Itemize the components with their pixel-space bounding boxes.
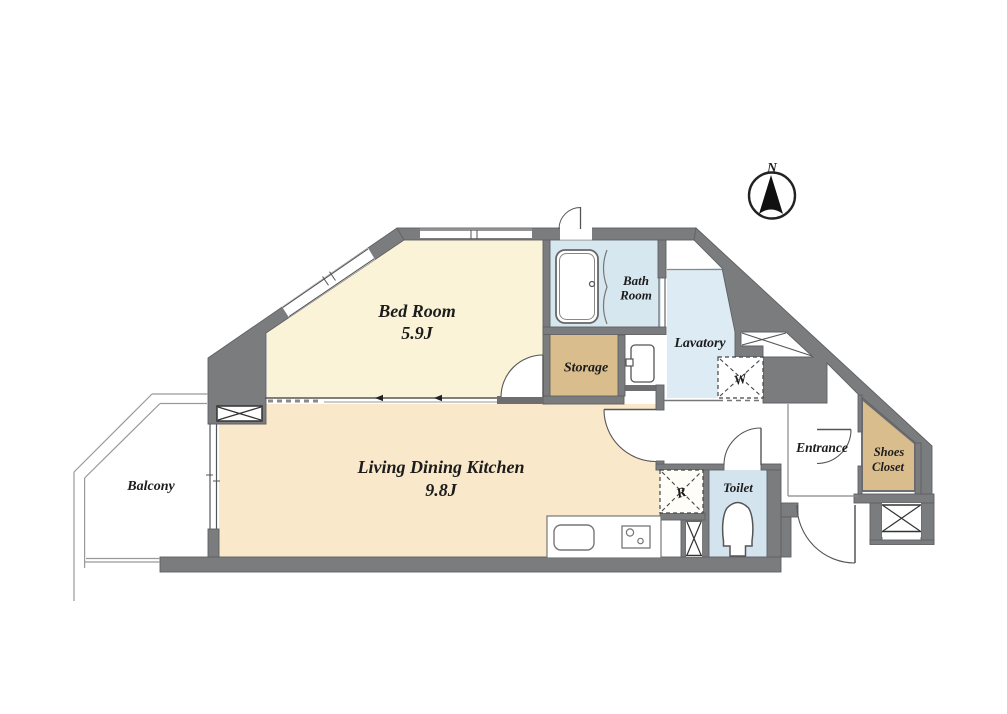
svg-text:5.9J: 5.9J <box>401 323 434 343</box>
svg-text:Bath: Bath <box>622 273 649 288</box>
svg-text:N: N <box>766 160 778 175</box>
svg-text:Toilet: Toilet <box>723 480 753 495</box>
svg-text:Shoes: Shoes <box>874 445 905 459</box>
svg-text:Bed Room: Bed Room <box>377 301 456 321</box>
svg-text:9.8J: 9.8J <box>425 480 458 500</box>
svg-text:Balcony: Balcony <box>126 479 175 494</box>
svg-text:Entrance: Entrance <box>795 440 848 455</box>
svg-text:Living Dining Kitchen: Living Dining Kitchen <box>356 457 524 477</box>
svg-text:Storage: Storage <box>564 361 608 376</box>
svg-text:Closet: Closet <box>872 460 904 474</box>
svg-text:Room: Room <box>619 288 652 303</box>
svg-text:Lavatory: Lavatory <box>673 336 726 351</box>
